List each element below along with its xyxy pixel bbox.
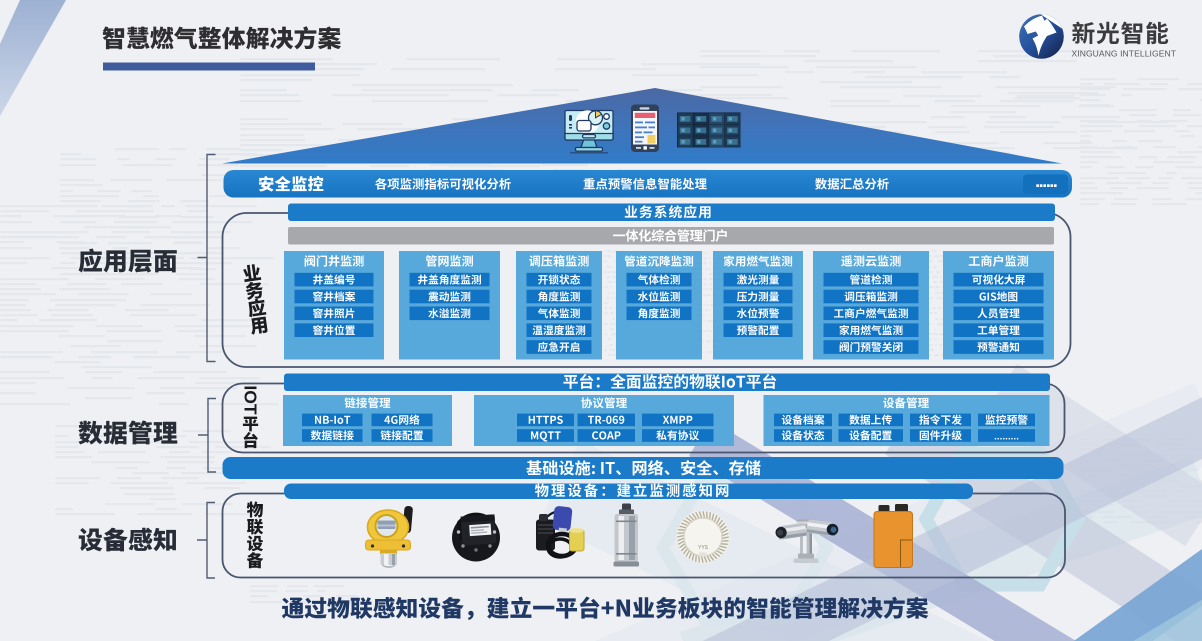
svg-text:IOT: IOT: [241, 385, 261, 414]
svg-text:XINGUANG INTELLIGENT: XINGUANG INTELLIGENT: [1072, 49, 1177, 59]
svg-text:YYS: YYS: [698, 545, 709, 551]
